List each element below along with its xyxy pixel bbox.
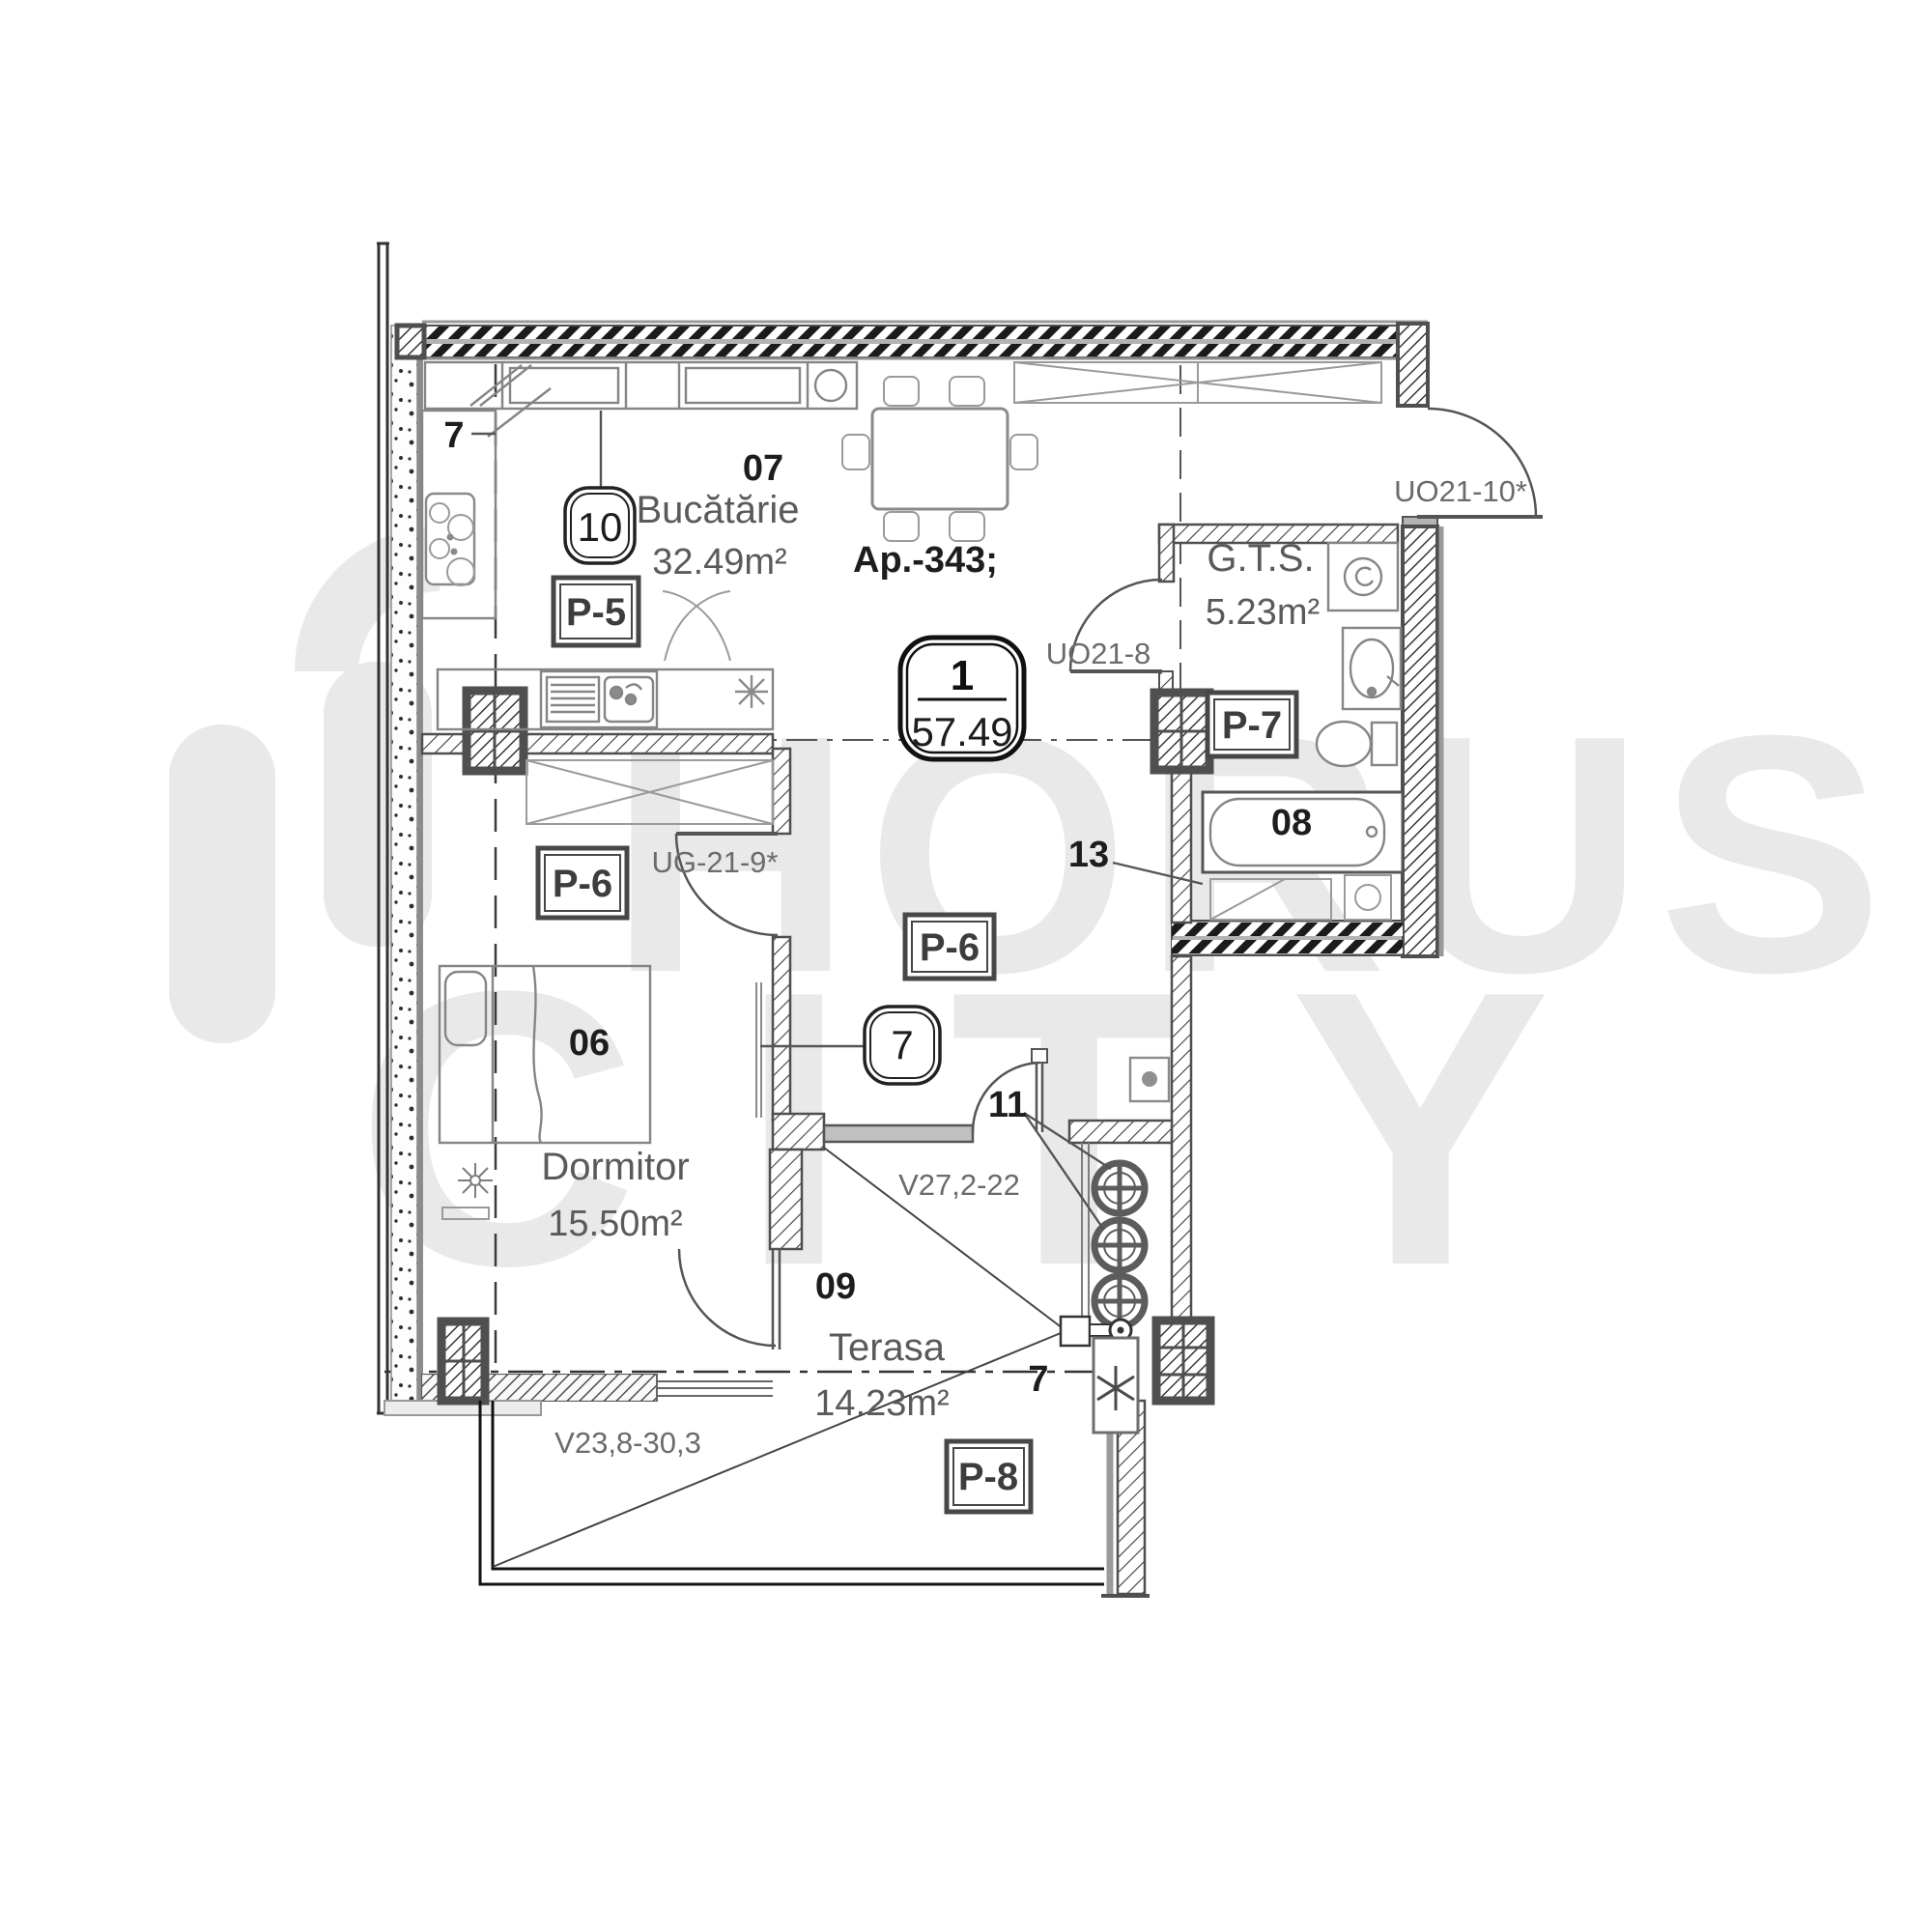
- terrace-name: Terasa: [829, 1326, 946, 1369]
- apartment-badge: 1 57.49: [900, 638, 1024, 759]
- extractor-arcs: [663, 591, 730, 661]
- finish-tag-p5-label: P-5: [566, 591, 626, 634]
- terrace-area: 14.23m²: [814, 1383, 949, 1424]
- bedroom-door-code: UG-21-9*: [652, 845, 779, 879]
- kitchen-number: 07: [743, 448, 783, 489]
- bedroom-window: [657, 1375, 773, 1401]
- bathroom-number: 08: [1271, 803, 1312, 843]
- vent-pipes: [1094, 1163, 1145, 1326]
- apartment-badge-area: 57.49: [911, 709, 1012, 754]
- pipe-marker: 13: [1068, 835, 1109, 875]
- gts-sink: [1343, 628, 1401, 709]
- washing-machine: [1328, 543, 1398, 611]
- hall-badge: 7: [865, 1007, 940, 1084]
- dining-table: [842, 377, 1037, 541]
- entry-wardrobe: [1014, 362, 1381, 403]
- section-marker-bottom: 7: [1028, 1359, 1048, 1400]
- apartment-ref: Ap.-343;: [853, 540, 998, 581]
- finish-tag-p7-label: P-7: [1222, 704, 1282, 747]
- finish-tag-p6-left-label: P-6: [553, 863, 612, 905]
- vent-marker: 11: [988, 1085, 1027, 1125]
- finish-tag-p6-center-label: P-6: [920, 926, 980, 969]
- apartment-badge-number: 1: [951, 652, 974, 699]
- wall-outlet-box: [1130, 1058, 1169, 1101]
- finish-tag-p8: P-8: [947, 1441, 1031, 1512]
- kitchen-area: 32.49m²: [652, 542, 786, 582]
- kitchen-name: Bucătărie: [637, 489, 800, 531]
- outlet-badge-number: 10: [578, 504, 623, 550]
- gts-door-code: UO21-8: [1046, 637, 1151, 670]
- floor-plan-page: HORUS CITY: [0, 0, 1932, 1932]
- finish-tag-p7: P-7: [1207, 693, 1296, 756]
- finish-tag-p6-left: P-6: [538, 848, 627, 918]
- watermark: HORUS CITY: [169, 526, 1897, 1347]
- gts-name: G.T.S.: [1207, 537, 1314, 580]
- terrace-number: 09: [815, 1266, 856, 1307]
- bedroom-number: 06: [569, 1023, 610, 1064]
- watermark-line2: CITY: [355, 909, 1653, 1347]
- gts-area: 5.23m²: [1206, 592, 1320, 633]
- hob-asterisk-icon: [735, 675, 768, 708]
- bedroom-window-code: V23,8-30,3: [554, 1426, 701, 1460]
- cooktop: [426, 494, 474, 585]
- hall-badge-number: 7: [891, 1022, 913, 1067]
- toilet: [1317, 722, 1397, 766]
- bedroom-name: Dormitor: [541, 1146, 689, 1188]
- plant-icon: [458, 1163, 493, 1198]
- outlet-badge: 10: [565, 488, 635, 563]
- finish-tag-p5: P-5: [554, 578, 639, 645]
- finish-tag-p6-center: P-6: [905, 915, 994, 979]
- finish-tag-p8-label: P-8: [958, 1456, 1018, 1498]
- ac-unit: [1094, 1338, 1138, 1433]
- entry-door-code: UO21-10*: [1394, 474, 1527, 508]
- terrace-window-code: V27,2-22: [898, 1168, 1020, 1202]
- section-marker-top: 7: [443, 415, 464, 456]
- bedroom-area: 15.50m²: [548, 1204, 682, 1244]
- kitchen-top-counter: [425, 362, 857, 437]
- floor-plan-drawing: HORUS CITY: [0, 0, 1932, 1932]
